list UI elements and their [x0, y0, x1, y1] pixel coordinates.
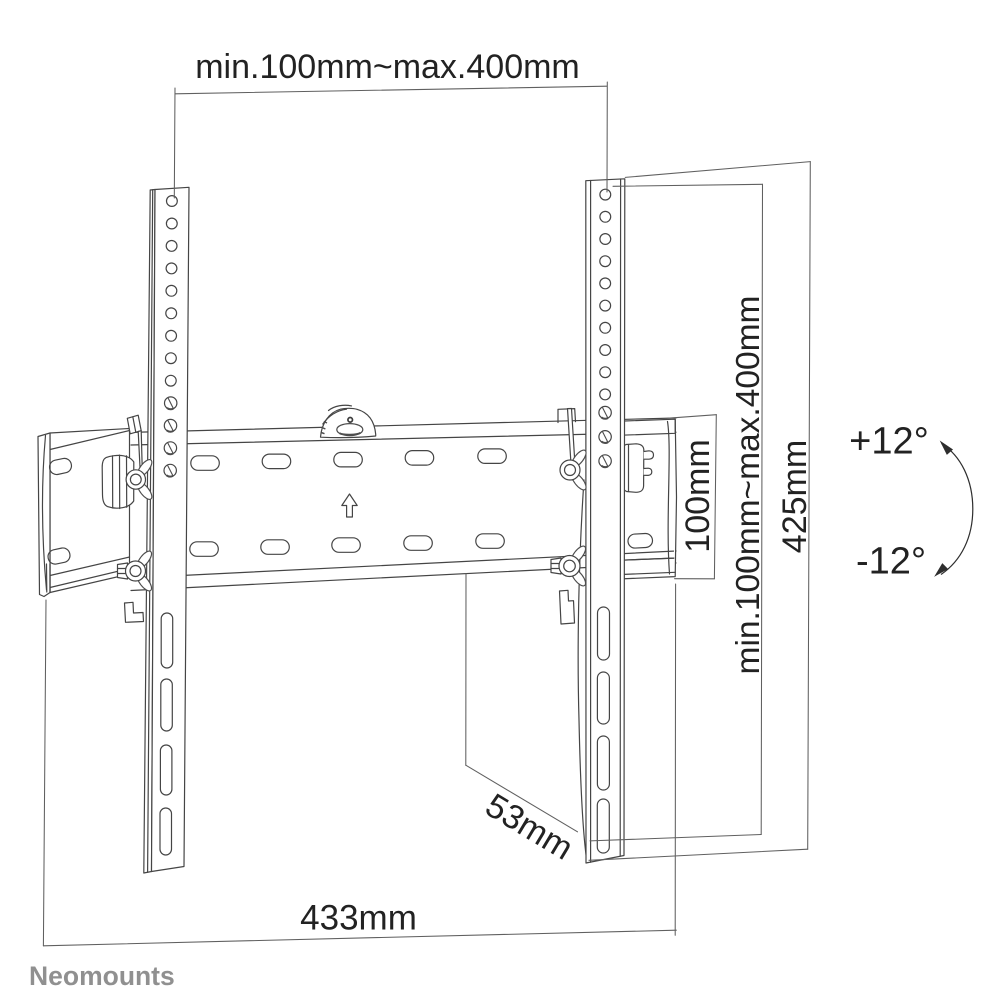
svg-text:min.100mm~max.400mm: min.100mm~max.400mm	[195, 48, 580, 86]
svg-text:min.100mm~max.400mm: min.100mm~max.400mm	[730, 296, 767, 675]
svg-text:53mm: 53mm	[479, 786, 580, 867]
svg-text:Neomounts: Neomounts	[29, 961, 175, 991]
svg-text:425mm: 425mm	[776, 440, 814, 553]
svg-text:+12°: +12°	[849, 421, 929, 463]
svg-text:433mm: 433mm	[300, 899, 417, 938]
svg-text:100mm: 100mm	[679, 439, 717, 552]
svg-text:-12°: -12°	[856, 541, 926, 583]
